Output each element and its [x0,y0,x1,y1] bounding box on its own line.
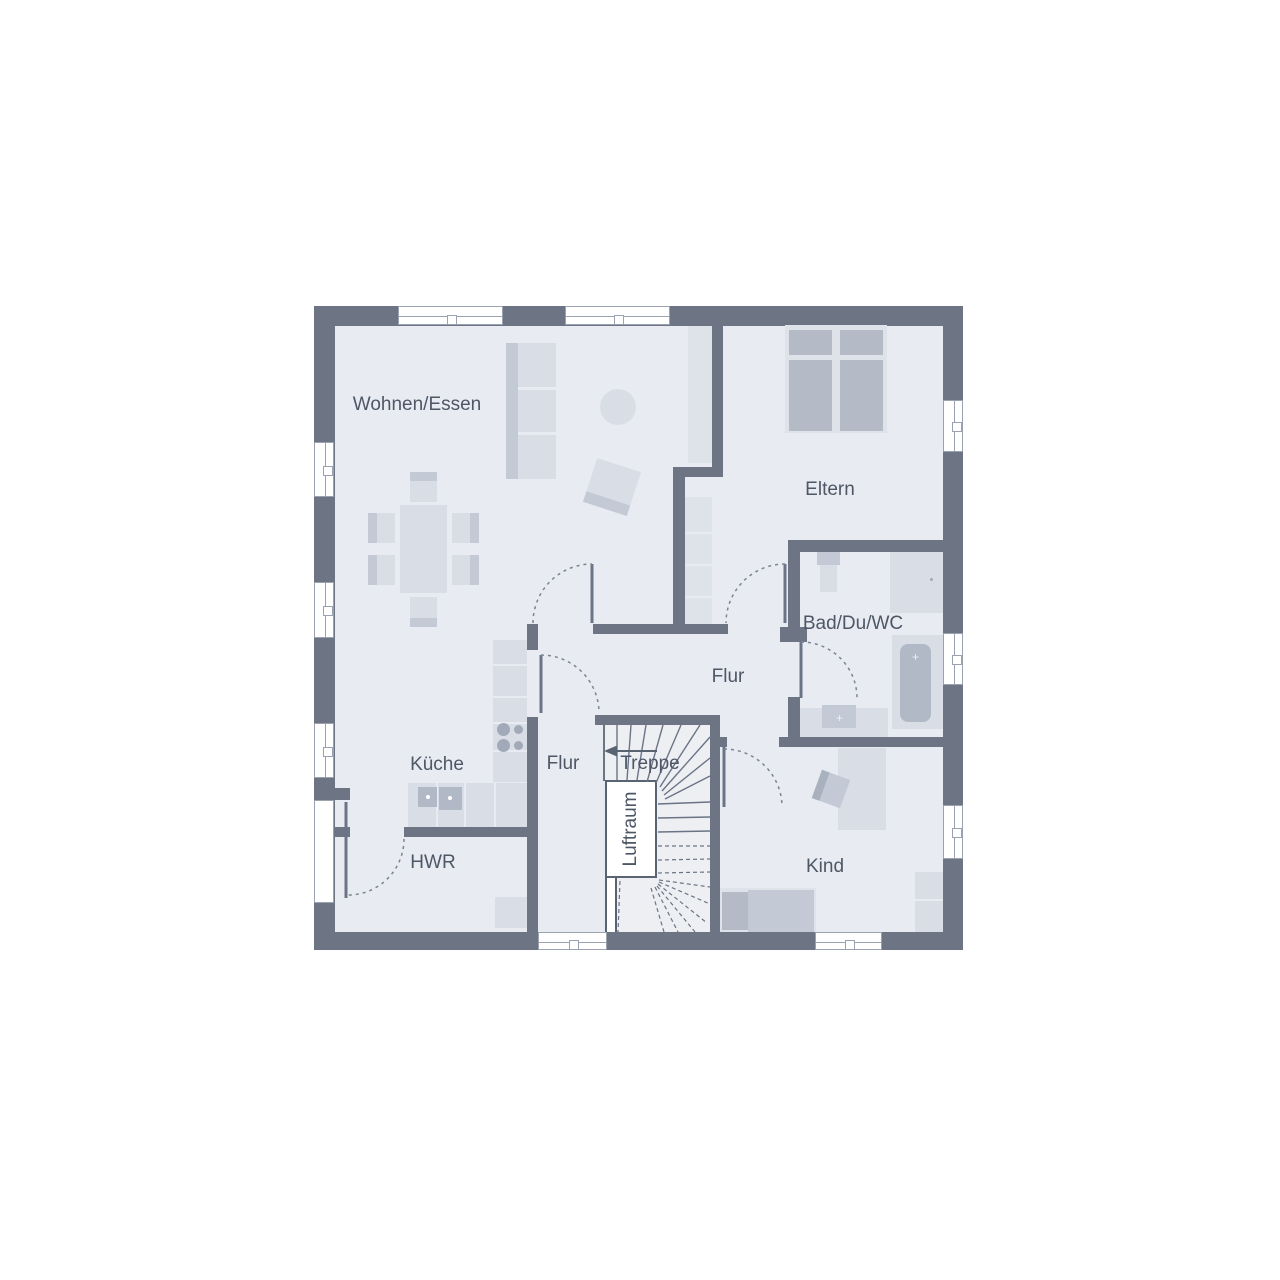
room-label-eltern: Eltern [805,479,855,501]
room-label-flur-lower: Flur [547,753,580,775]
room-label-flur-upper: Flur [712,666,745,688]
door-swing-arc [348,564,857,895]
room-label-wohnen-essen: Wohnen/Essen [353,394,482,416]
room-label-treppe: Treppe [620,753,680,775]
floor-plan: + + [314,306,963,950]
door-leaf [346,564,801,898]
room-label-luftraum: Luftraum [620,792,642,867]
room-label-kind: Kind [806,856,844,878]
room-label-bad-du-wc: Bad/Du/WC [803,613,903,635]
room-label-hwr: HWR [410,852,455,874]
room-label-kueche: Küche [410,754,464,776]
